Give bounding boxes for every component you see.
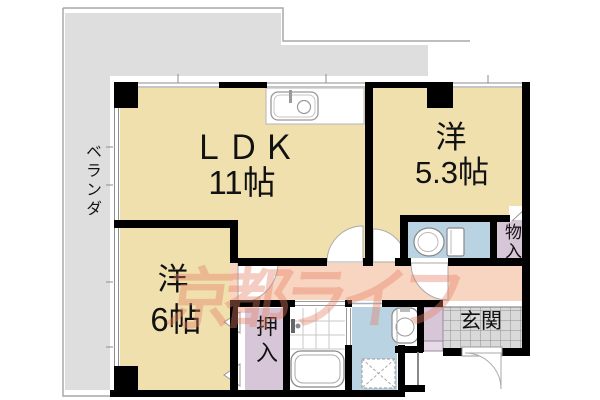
pillar-top-left <box>114 82 138 108</box>
ldk-room-label: ＬＤＫ <box>182 131 307 166</box>
shower-knob-icon <box>296 324 301 329</box>
washbasin <box>392 308 418 343</box>
pipe-space <box>405 353 418 385</box>
closet-oshiire-label: 押入 <box>249 315 281 367</box>
bathroom-door <box>295 300 345 307</box>
shower-faucet-icon <box>291 319 295 333</box>
pillar-bottom-left <box>114 366 138 392</box>
pillar-top-middle <box>427 82 453 108</box>
storage-monoire-label: 物入 <box>499 223 524 261</box>
entrance-label: 玄関 <box>449 311 513 333</box>
entrance-door-arc <box>465 353 501 389</box>
shoe-cabinet-counter <box>423 341 443 351</box>
veranda-label: ベランダ <box>79 143 103 219</box>
bathroom-side-door <box>345 308 352 345</box>
shoe-cabinet <box>423 307 443 341</box>
kitchen-faucet-icon <box>289 90 292 103</box>
pipe-space-edge <box>417 352 419 385</box>
western-6-room-size: 6帖 <box>121 303 231 338</box>
ldk-room-size: 11帖 <box>182 166 302 201</box>
washing-machine-space <box>362 359 395 388</box>
western-53-room-size: 5.3帖 <box>391 157 513 190</box>
floor-plan: ＬＤＫ 11帖 洋 5.3帖 洋 6帖 玄関 ベランダ 押入 物入 京都ライフ <box>0 0 600 400</box>
toilet-fixture <box>414 228 464 256</box>
western-53-room-label: 洋 <box>425 122 477 155</box>
western-6-room-label: 洋 <box>147 264 199 297</box>
kitchen-counter <box>266 88 364 124</box>
kitchen-drain-icon <box>298 101 311 114</box>
